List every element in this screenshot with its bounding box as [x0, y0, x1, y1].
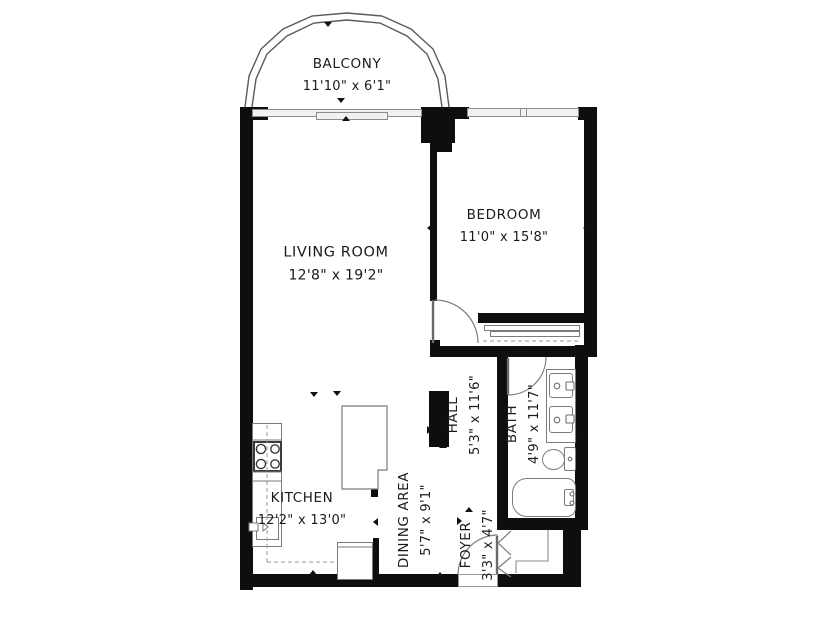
- room-dims: 12'2" x 13'0": [258, 513, 347, 528]
- bedroom-window: [467, 108, 579, 117]
- balcony-label: BALCONY 11'10" x 6'1": [303, 56, 392, 94]
- wall-center-column: [421, 107, 455, 143]
- room-name: DINING AREA: [396, 472, 412, 568]
- wall-bath-top: [546, 346, 588, 357]
- bath-sink: [549, 406, 573, 433]
- tub-faucet: [564, 489, 574, 506]
- bath-sink: [549, 373, 573, 398]
- floor-plan: BALCONY 11'10" x 6'1" LIVING ROOM 12'8" …: [0, 0, 840, 630]
- wall-bedroom-right: [584, 107, 597, 357]
- room-dims: 11'0" x 15'8": [460, 230, 549, 245]
- wall-bath-right: [575, 345, 588, 530]
- wall-bedroom-closet-top: [478, 313, 584, 323]
- living-room-label: LIVING ROOM 12'8" x 19'2": [283, 245, 388, 284]
- bath-label: BATH 4'9" x 11'7": [504, 384, 542, 464]
- wall-bath-bottom: [497, 518, 588, 530]
- stove: [253, 441, 282, 472]
- closet-sliding-door: [490, 331, 580, 337]
- room-dims: 11'10" x 6'1": [303, 79, 392, 94]
- toilet-tank: [564, 447, 576, 471]
- room-dims: 4'9" x 11'7": [527, 384, 542, 464]
- room-name: HALL: [445, 375, 461, 455]
- room-dims: 5'7" x 9'1": [419, 472, 434, 568]
- bedroom-window-mullion: [520, 108, 521, 117]
- room-name: BALCONY: [303, 56, 392, 72]
- wall-bedroom-top-right: [578, 107, 597, 120]
- room-name: BEDROOM: [460, 207, 549, 223]
- dining-area-label: DINING AREA 5'7" x 9'1": [396, 472, 434, 568]
- kitchen-label: KITCHEN 12'2" x 13'0": [258, 490, 347, 528]
- closet-interior-line: [516, 530, 548, 573]
- foyer-label: FOYER 3'3" x 4'7": [458, 509, 496, 580]
- room-name: LIVING ROOM: [283, 245, 388, 261]
- hall-label: HALL 5'3" x 11'6": [445, 375, 483, 455]
- wall-counter-stub: [373, 538, 379, 580]
- bedroom-window-mullion: [526, 108, 527, 117]
- kitchen-island: [342, 406, 387, 489]
- wall-island-stub: [371, 470, 378, 497]
- room-name: FOYER: [458, 509, 474, 580]
- room-dims: 3'3" x 4'7": [481, 509, 496, 580]
- room-dims: 12'8" x 19'2": [283, 268, 388, 284]
- wall-living-bedroom: [430, 143, 437, 301]
- kitchen-counter-bottom: [337, 542, 373, 580]
- bedroom-label: BEDROOM 11'0" x 15'8": [460, 207, 549, 245]
- bifold-doors: [498, 531, 511, 577]
- room-name: BATH: [504, 384, 520, 464]
- room-dims: 5'3" x 11'6": [468, 375, 483, 455]
- sliding-door: [316, 112, 388, 120]
- room-name: KITCHEN: [258, 490, 347, 506]
- toilet-bowl: [542, 449, 565, 470]
